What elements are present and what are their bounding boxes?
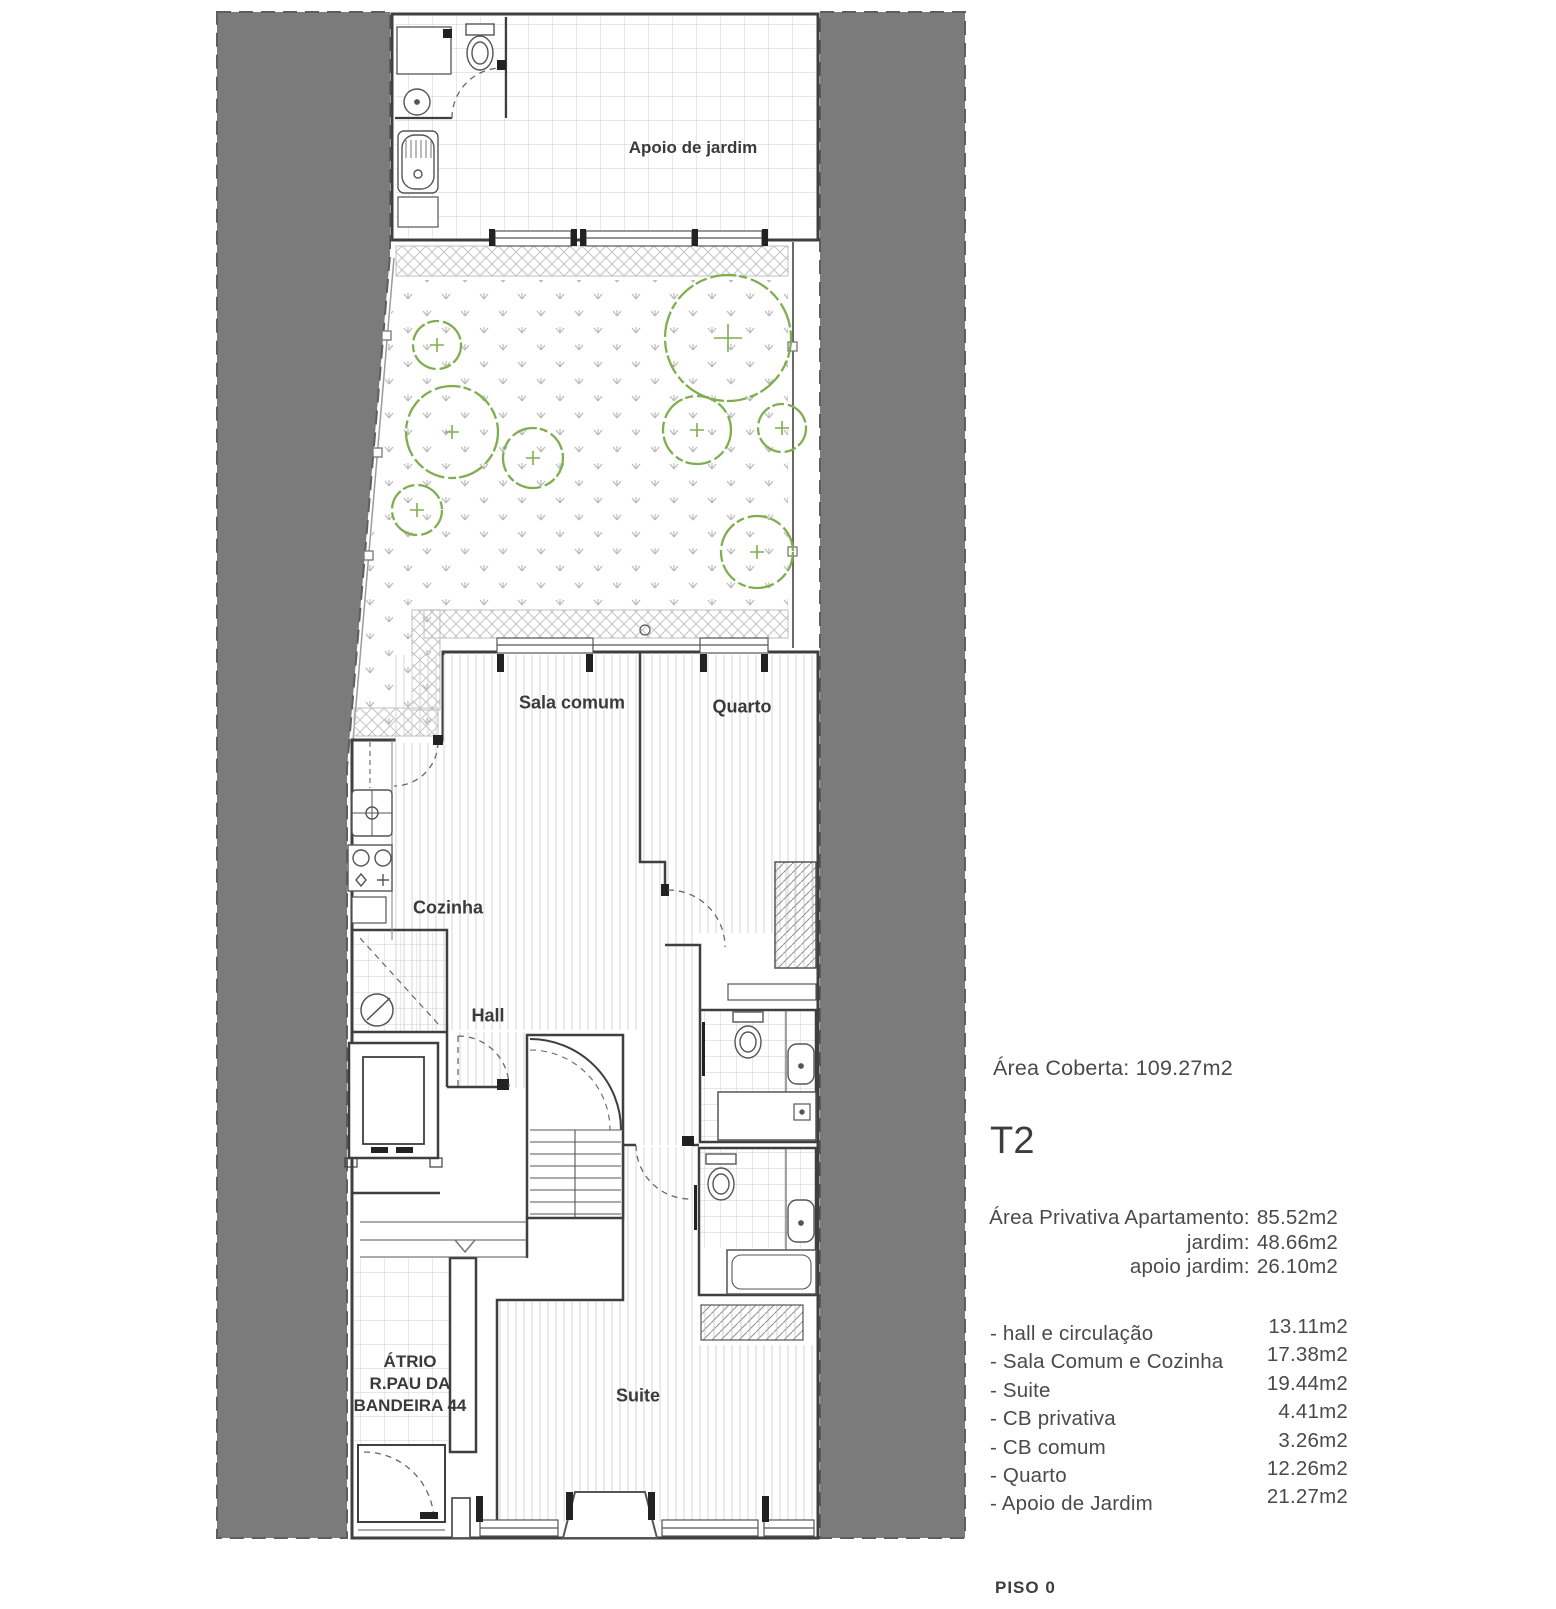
room-label-cozinha: Cozinha (413, 898, 483, 919)
room-area-value: 12.26m2 (1267, 1457, 1348, 1481)
cb-privativa-door-leaf (694, 1185, 697, 1230)
apoio-windows (489, 229, 768, 246)
kitchen-door-leaf (433, 735, 443, 745)
corridor-floor (641, 933, 697, 1145)
neighbor-building-right (820, 12, 965, 1538)
suite-door-leaf (682, 1136, 694, 1146)
suite-wardrobe (701, 1305, 803, 1340)
floor-plan-page: Apoio de jardim Sala comum Quarto Cozinh… (0, 0, 1556, 1609)
room-area-value: 13.11m2 (1268, 1315, 1348, 1339)
private-area-value: 48.66m2 (1257, 1231, 1338, 1256)
bay-door (563, 1492, 657, 1538)
room-area-value: 19.44m2 (1267, 1372, 1348, 1396)
laundry-closet (361, 994, 393, 1026)
elevator (345, 1043, 442, 1167)
atrio-line-2: R.PAU DA (354, 1373, 467, 1395)
room-label-suite: Suite (616, 1386, 660, 1407)
room-area-label: - Quarto (990, 1464, 1067, 1488)
private-area-row: Área Privativa Apartamento: 85.52m2 (960, 1206, 1338, 1231)
quarto-door-leaf (661, 884, 669, 896)
atrio-line-1: ÁTRIO (354, 1351, 467, 1373)
room-area-label: - Suite (990, 1379, 1051, 1403)
bathtub-icon (398, 131, 438, 193)
private-areas-block: Área Privativa Apartamento: 85.52m2 jard… (960, 1206, 1338, 1280)
room-label-atrio: ÁTRIO R.PAU DA BANDEIRA 44 (354, 1351, 467, 1417)
room-area-value: 4.41m2 (1278, 1400, 1348, 1424)
toilet-icon (466, 24, 494, 70)
room-area-label: - Apoio de Jardim (990, 1492, 1153, 1516)
apoio-de-jardim-room (392, 14, 818, 246)
cb-comum-door-leaf (702, 1022, 705, 1076)
oven-icon (352, 897, 386, 923)
room-area-label: - CB privativa (990, 1407, 1116, 1431)
cabinet (398, 197, 438, 227)
private-area-label: jardim: (1187, 1231, 1250, 1256)
shower-icon (397, 27, 452, 74)
room-label-apoio-de-jardim: Apoio de jardim (629, 138, 757, 158)
room-areas-list: - hall e circulação 13.11m2 - Sala Comum… (990, 1322, 1348, 1521)
hall-door-leaf (497, 1079, 509, 1090)
shelf (728, 984, 816, 1000)
private-area-row: apoio jardim: 26.10m2 (960, 1255, 1338, 1280)
entrance-door-leaf (420, 1512, 438, 1519)
floor-label: PISO 0 (995, 1578, 1056, 1598)
private-area-value: 26.10m2 (1257, 1255, 1338, 1280)
pillar (452, 1498, 470, 1538)
room-area-label: - Sala Comum e Cozinha (990, 1350, 1223, 1374)
room-area-value: 21.27m2 (1267, 1485, 1348, 1509)
room-area-label: - CB comum (990, 1436, 1106, 1460)
room-area-label: - hall e circulação (990, 1322, 1153, 1346)
atrio-line-3: BANDEIRA 44 (354, 1395, 467, 1417)
private-area-label: Área Privativa Apartamento: (989, 1206, 1250, 1231)
unit-type-label: T2 (990, 1120, 1035, 1163)
room-label-quarto: Quarto (712, 697, 771, 718)
door-leaf (497, 60, 506, 70)
private-area-label: apoio jardim: (1130, 1255, 1250, 1280)
room-area-row: - Apoio de Jardim 21.27m2 (990, 1492, 1348, 1520)
room-label-sala-comum: Sala comum (519, 693, 625, 714)
stove-icon (348, 845, 392, 891)
quarto-wardrobe (775, 862, 816, 968)
private-area-value: 85.52m2 (1257, 1206, 1338, 1231)
area-coberta-text: Área Coberta: 109.27m2 (993, 1056, 1233, 1081)
toilet-tank (706, 1154, 736, 1164)
private-area-row: jardim: 48.66m2 (960, 1231, 1338, 1256)
sink-icon (404, 89, 430, 115)
room-area-value: 17.38m2 (1267, 1343, 1348, 1367)
room-label-hall: Hall (471, 1006, 504, 1027)
toilet-tank (733, 1012, 763, 1022)
room-area-value: 3.26m2 (1278, 1429, 1348, 1453)
